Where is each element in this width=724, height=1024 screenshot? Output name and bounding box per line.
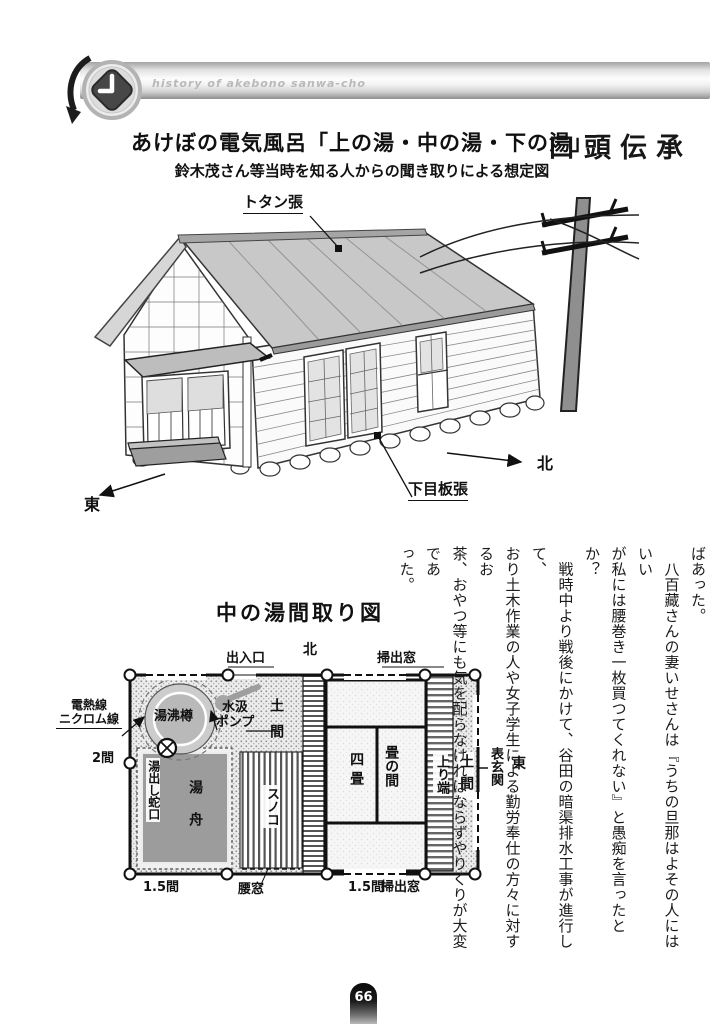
label-boiler: 湯沸樽 bbox=[154, 710, 193, 725]
side-window-3 bbox=[416, 332, 448, 412]
label-roof-totan: トタン張 bbox=[243, 194, 303, 214]
document-page: 口頭伝承 history of akebono sanwa-cho あけぼの電気… bbox=[0, 0, 724, 1024]
label-waist-window: 腰窓 bbox=[238, 883, 264, 898]
label-hot-water-tap: 湯出し蛇口 bbox=[146, 758, 160, 822]
page-number: 66 bbox=[354, 990, 372, 1005]
house-illustration bbox=[80, 185, 640, 525]
utility-pole bbox=[542, 198, 628, 411]
label-dim-bottom-right: 1.5間 bbox=[348, 881, 384, 896]
corridor-band bbox=[303, 675, 324, 874]
history-clock-icon bbox=[60, 52, 150, 144]
label-dim-bottom-left: 1.5間 bbox=[143, 881, 179, 896]
page-subtitle: 鈴木茂さん等当時を知る人からの聞き取りによる想定図 bbox=[0, 160, 724, 181]
label-pump-line2: ポンプ bbox=[211, 716, 259, 731]
tap-valve-symbol bbox=[158, 739, 176, 757]
label-bathtub: 湯舟 bbox=[187, 780, 203, 844]
label-doma-left: 土間 bbox=[268, 698, 284, 750]
label-plan-north: 北 bbox=[303, 642, 317, 658]
label-pump-line1: 水汲 bbox=[211, 701, 259, 716]
label-heater-wire: 電熱線 ニクロム線 bbox=[56, 699, 122, 729]
side-window-2 bbox=[346, 343, 382, 438]
page-number-tab: 66 bbox=[350, 983, 377, 1024]
label-four-tatami: 四畳 bbox=[348, 752, 364, 790]
label-heater-line2: ニクロム線 bbox=[56, 713, 122, 727]
label-dim-left: 2間 bbox=[92, 752, 114, 767]
label-house-east: 東 bbox=[84, 496, 100, 514]
label-house-north: 北 bbox=[537, 455, 553, 473]
header-subtitle: history of akebono sanwa-cho bbox=[152, 77, 366, 90]
label-pump: 水汲 ポンプ bbox=[211, 701, 259, 731]
label-heater-line1: 電熱線 bbox=[56, 699, 122, 713]
side-window-1 bbox=[304, 350, 345, 446]
label-siding: 下目板張 bbox=[408, 481, 468, 501]
label-entrance: 出入口 bbox=[226, 652, 265, 667]
label-duckboard: スノコ bbox=[263, 785, 278, 828]
vertical-body-text: ばあった。 八百藏さんの妻いせさんは『うちの旦那はよその人にはいい が私には腰巻… bbox=[392, 546, 710, 960]
